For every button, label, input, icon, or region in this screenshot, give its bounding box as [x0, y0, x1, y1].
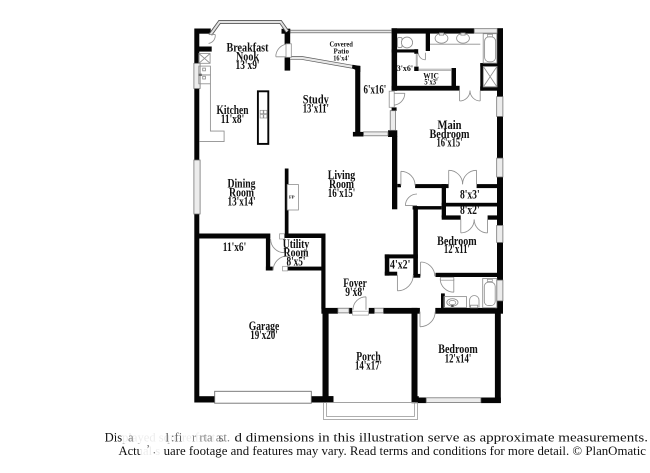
svg-text:13'x9': 13'x9' [236, 57, 260, 72]
svg-text:13'x14': 13'x14' [228, 193, 256, 208]
svg-text:’ .: ’ . [146, 443, 156, 457]
svg-text:16'x15': 16'x15' [328, 185, 356, 200]
svg-text:6'x16': 6'x16' [364, 82, 387, 97]
svg-text:3'x6': 3'x6' [397, 64, 413, 73]
svg-text:8'x2': 8'x2' [460, 202, 480, 217]
svg-text:11'x8': 11'x8' [221, 111, 245, 126]
svg-text:uare footage and features may: uare footage and features may vary. Read… [164, 444, 647, 458]
svg-text:st.: st. [219, 430, 231, 444]
svg-text:d dimensions in this illustrat: d dimensions in this illustration serve … [235, 431, 649, 445]
svg-text:11'x6': 11'x6' [223, 239, 246, 254]
svg-text:5'x3': 5'x3' [424, 77, 438, 86]
svg-text::fi: :fi [171, 430, 183, 444]
svg-text:4'x2': 4'x2' [390, 256, 410, 271]
svg-text:FP: FP [289, 195, 295, 200]
svg-text:l: l [166, 430, 170, 444]
svg-text:14'x17': 14'x17' [355, 358, 382, 373]
svg-text:16'x15': 16'x15' [437, 135, 463, 150]
svg-text:16'x4': 16'x4' [333, 53, 349, 62]
svg-text:13'x11': 13'x11' [303, 100, 329, 115]
svg-text:19'x20': 19'x20' [250, 327, 278, 342]
svg-text:12'x11': 12'x11' [444, 241, 470, 256]
svg-text:a: a [128, 430, 134, 444]
svg-text:12'x14': 12'x14' [445, 350, 472, 365]
svg-text:9'x8': 9'x8' [345, 284, 365, 299]
svg-text:8'x5': 8'x5' [287, 254, 306, 269]
svg-text:8'x3': 8'x3' [460, 186, 480, 201]
